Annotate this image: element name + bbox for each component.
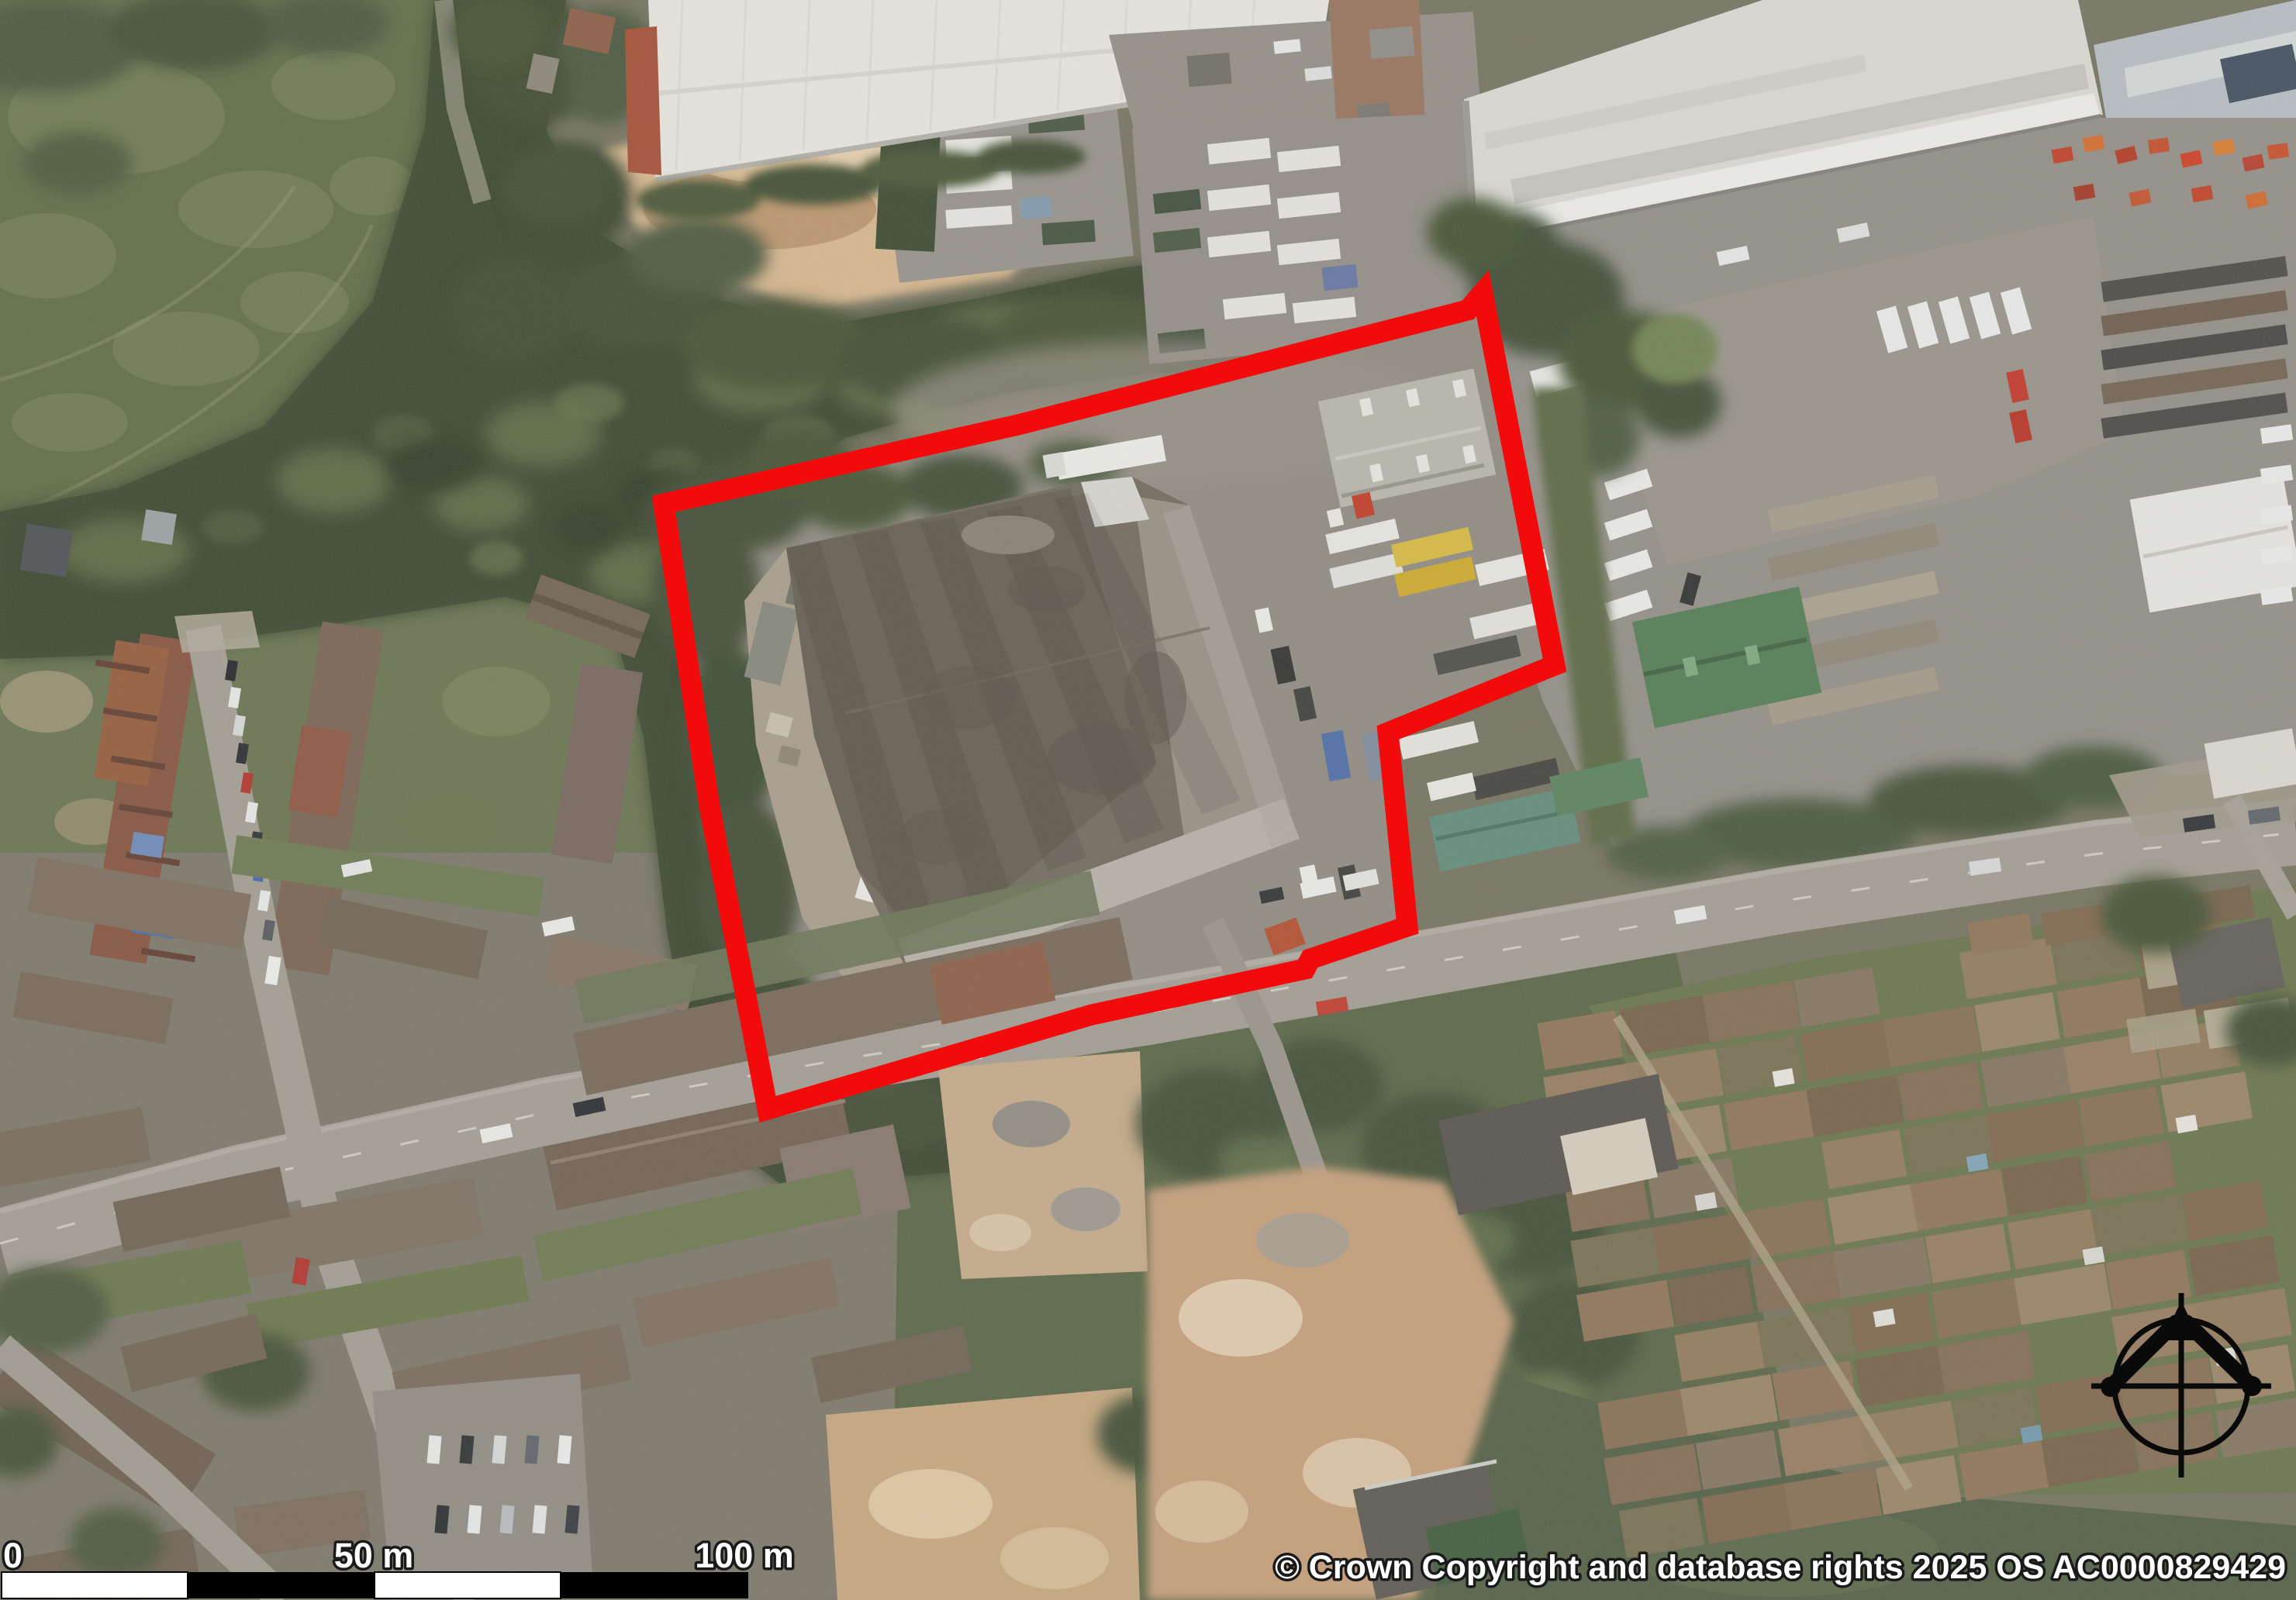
svg-text:100 m: 100 m [695,1536,794,1575]
svg-text:50 m: 50 m [334,1536,414,1575]
svg-text:© Crown Copyright and database: © Crown Copyright and database rights 20… [1275,1549,2286,1586]
svg-text:0: 0 [3,1536,22,1575]
